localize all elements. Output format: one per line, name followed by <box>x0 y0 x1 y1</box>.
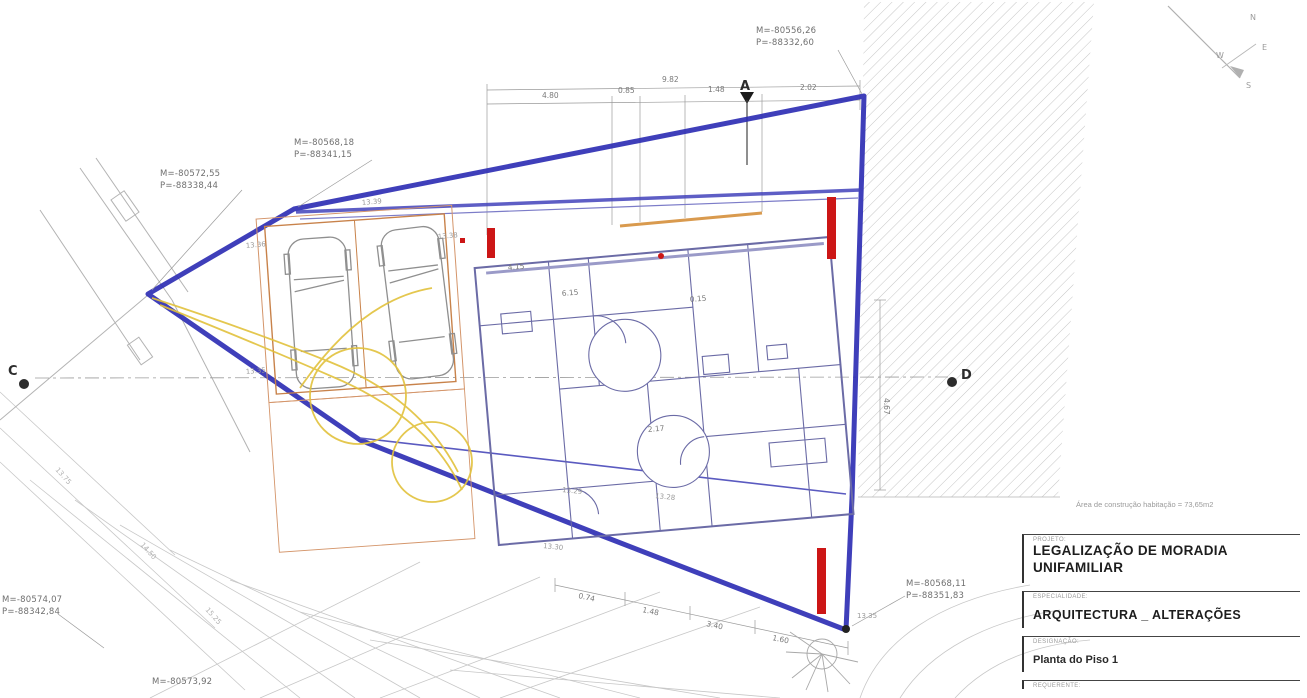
bottom-dimension-chain <box>555 578 848 655</box>
title-block-designation: DESIGNAÇÃO: Planta do Piso 1 <box>1022 636 1300 672</box>
dimension-top-2: 0.85 <box>618 86 635 95</box>
dimension-top-3: 1.48 <box>708 85 725 94</box>
dimension-interior-1: 4.15 <box>507 262 525 272</box>
survey-m: M=-80572,55 <box>160 169 220 179</box>
section-line-cd <box>19 377 957 389</box>
vehicle-circulation-curves <box>152 288 472 502</box>
section-marker-a: A <box>740 79 750 94</box>
compass-rose: N E S W <box>1168 6 1267 90</box>
survey-p: P=-88341,15 <box>294 150 352 160</box>
spot-elevation: 13.39 <box>361 197 382 207</box>
road-edge-lines <box>0 158 250 452</box>
orange-wall-segment <box>620 213 762 226</box>
sheet-title: Planta do Piso 1 <box>1033 654 1300 666</box>
dimension-overall-top: 9.82 <box>662 75 679 84</box>
title-block-project: PROJETO: LEGALIZAÇÃO DE MORADIA UNIFAMIL… <box>1022 534 1300 583</box>
spot-elevation: 13.30 <box>543 542 564 552</box>
survey-p: P=-88351,83 <box>906 591 964 601</box>
area-note: Área de construção habitação = 73,65m2 <box>1076 500 1213 509</box>
section-marker-a-group <box>740 92 754 165</box>
title-block-client-label: REQUERENTE: <box>1033 683 1300 689</box>
survey-p: P=-88332,60 <box>756 38 814 48</box>
contour-label: 14.50 <box>139 541 158 561</box>
site-boundary-polygon <box>148 96 864 630</box>
survey-p: P=-88342,84 <box>2 607 60 617</box>
dimension-interior-2: 6.15 <box>561 288 579 298</box>
boundary-vertex-dot <box>842 625 850 633</box>
title-block: PROJETO: LEGALIZAÇÃO DE MORADIA UNIFAMIL… <box>1022 534 1300 689</box>
speciality-title: ARQUITECTURA _ ALTERAÇÕES <box>1033 608 1300 622</box>
section-marker-c: C <box>8 364 18 379</box>
section-marker-d-dot <box>947 377 957 387</box>
compass-s: S <box>1246 81 1251 90</box>
survey-m: M=-80573,92 <box>152 677 212 687</box>
dimension-right: 4.67 <box>882 398 891 415</box>
dimension-interior-3: 0.15 <box>689 294 707 304</box>
survey-m: M=-80568,11 <box>906 579 966 589</box>
survey-point-bottomright: M=-80568,11 P=-88351,83 <box>906 579 966 601</box>
title-block-speciality: ESPECIALIDADE: ARQUITECTURA _ ALTERAÇÕES <box>1022 591 1300 628</box>
survey-m: M=-80556,26 <box>756 26 816 36</box>
corner-fan-symbol <box>786 632 858 692</box>
drawing-sheet: 13.75 14.50 15.25 C D 9.82 4.80 0.85 1.4… <box>0 0 1307 698</box>
survey-point-upperleft: M=-80568,18 P=-88341,15 <box>294 138 354 160</box>
project-title-line2: UNIFAMILIAR <box>1033 560 1300 577</box>
project-title-line1: LEGALIZAÇÃO DE MORADIA <box>1033 543 1300 560</box>
compass-n: N <box>1250 13 1256 22</box>
title-block-speciality-label: ESPECIALIDADE: <box>1033 594 1300 600</box>
survey-point-topright: M=-80556,26 P=-88332,60 <box>756 26 816 48</box>
neighbour-hatch-area <box>858 2 1094 497</box>
title-block-designation-label: DESIGNAÇÃO: <box>1033 639 1300 645</box>
dimension-top-4: 2.02 <box>800 83 817 92</box>
section-marker-c-dot <box>19 379 29 389</box>
compass-w: W <box>1216 51 1224 60</box>
survey-m: M=-80574,07 <box>2 595 62 605</box>
spot-elevation: 13.38 <box>437 231 458 241</box>
spot-elevation: 13.29 <box>562 486 583 496</box>
spot-elevation: 13.36 <box>245 240 266 250</box>
survey-point-bottom: M=-80573,92 <box>152 677 212 687</box>
survey-m: M=-80568,18 <box>294 138 354 148</box>
contour-label: 13.75 <box>54 466 73 486</box>
dimension-interior-4: 2.17 <box>647 424 665 434</box>
car-1 <box>283 236 359 390</box>
survey-point-bottomleft: M=-80574,07 P=-88342,84 <box>2 595 62 617</box>
survey-p: P=-88338,44 <box>160 181 218 191</box>
compass-e: E <box>1262 43 1267 52</box>
contour-label: 15.25 <box>204 606 223 626</box>
survey-point-left: M=-80572,55 P=-88338,44 <box>160 169 220 191</box>
section-marker-d: D <box>961 368 972 383</box>
dimension-top-1: 4.80 <box>542 91 559 100</box>
title-block-client: REQUERENTE: <box>1022 680 1300 689</box>
